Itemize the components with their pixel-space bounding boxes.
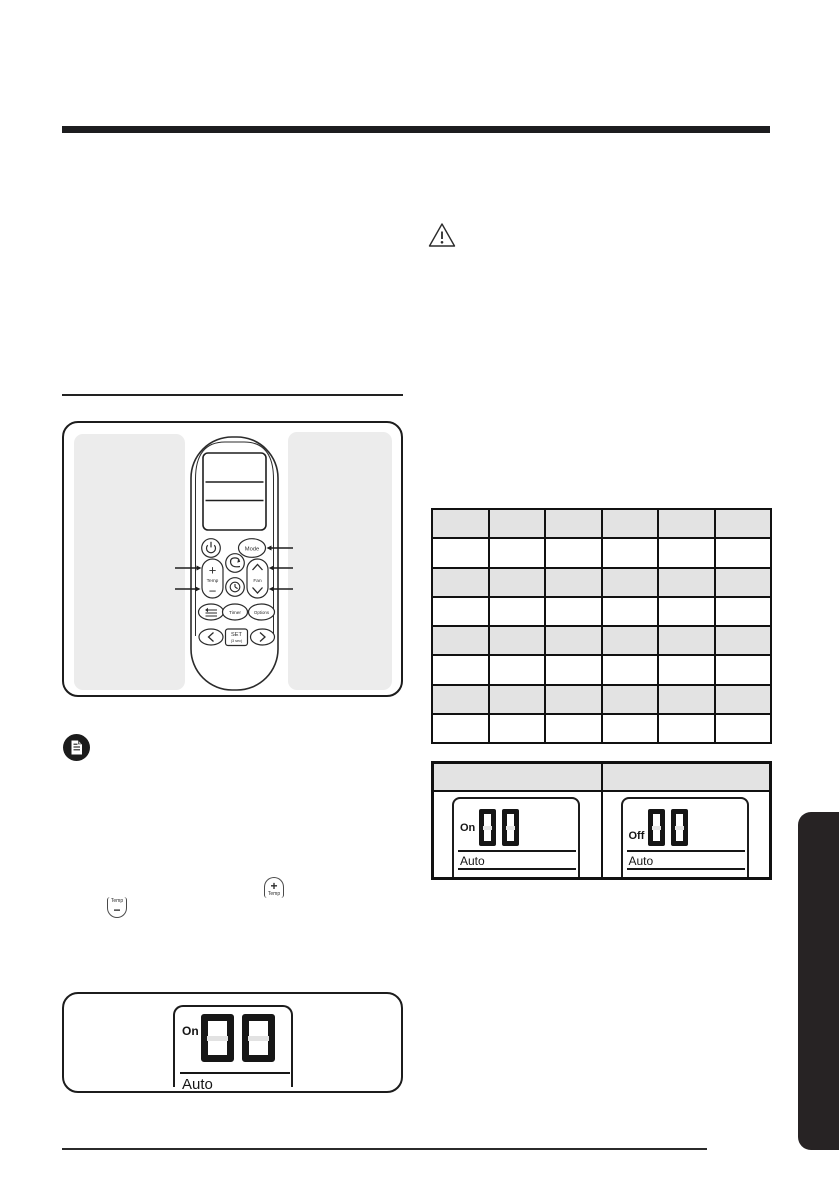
lcd-divider: [627, 868, 745, 870]
figure-heading-rule: [62, 394, 403, 396]
table-cell: [489, 714, 546, 743]
set-button-sublabel: (3 sec): [231, 639, 243, 643]
lcd-divider: [627, 850, 745, 852]
panel-right: [288, 432, 392, 690]
prev-button: [199, 629, 223, 645]
table-cell: [658, 655, 715, 684]
seven-segment-zero: [201, 1014, 234, 1062]
table-cell: [545, 655, 602, 684]
remote-control-drawing: Mode + Temp − Fan: [62, 421, 403, 697]
table-cell: [658, 597, 715, 626]
timer-table-header-on: [433, 763, 602, 791]
lcd-display-large: On 00 Auto: [173, 1005, 293, 1087]
table-cell: [545, 538, 602, 567]
table-cell: [602, 597, 659, 626]
table-cell: [432, 538, 489, 567]
table-cell: [545, 626, 602, 655]
timer-table: On 00 Auto Off 00 Auto: [431, 761, 772, 880]
lcd-mode: Auto: [182, 1076, 213, 1093]
table-row: [432, 568, 771, 597]
temp-up-button-icon: + Temp: [264, 877, 284, 898]
table-row: [432, 685, 771, 714]
lcd-status: On: [182, 1024, 199, 1038]
lcd-divider: [458, 850, 576, 852]
minus-sign: −: [113, 904, 120, 916]
table-cell: [602, 685, 659, 714]
chapter-tab: [798, 812, 839, 1150]
table-cell: [432, 597, 489, 626]
section-title-rule: [62, 126, 770, 133]
table-cell: [489, 626, 546, 655]
table-cell: [715, 714, 772, 743]
air-direction-button: [226, 554, 245, 573]
table-row: [432, 597, 771, 626]
table-cell: [545, 597, 602, 626]
plus-sign: +: [270, 880, 277, 892]
remote-display: [203, 453, 266, 530]
table-cell: [602, 538, 659, 567]
table-cell: [432, 685, 489, 714]
table-cell: [602, 568, 659, 597]
table-cell: [489, 509, 546, 538]
seven-segment-zero: [242, 1014, 275, 1062]
table-cell: [545, 509, 602, 538]
table-cell: [432, 655, 489, 684]
table-cell: [715, 655, 772, 684]
table-cell: [602, 626, 659, 655]
seven-segment-zero: [502, 809, 519, 846]
table-cell: [489, 655, 546, 684]
seven-segment-digits: [201, 1014, 275, 1062]
warning-triangle-icon: [427, 221, 457, 251]
table-cell: [715, 509, 772, 538]
table-cell: [715, 538, 772, 567]
mode-button-label: Mode: [245, 546, 260, 552]
timer-table-header-off: [602, 763, 771, 791]
seven-segment-zero: [648, 809, 665, 846]
timer-button-label: Timer: [229, 610, 241, 616]
temp-down-button-icon: Temp −: [107, 897, 127, 918]
fan-button-label: Fan: [253, 578, 262, 584]
table-cell: [432, 626, 489, 655]
table-row: [432, 714, 771, 743]
table-cell: [658, 714, 715, 743]
table-cell: [715, 597, 772, 626]
temp-label: Temp: [268, 892, 280, 897]
table-row: [432, 655, 771, 684]
lcd-value: 00: [623, 799, 624, 800]
on-timer-figure: On 00 Auto: [62, 992, 403, 1093]
manual-page: Mode + Temp − Fan: [0, 0, 839, 1191]
table-row: [432, 509, 771, 538]
panel-left: [74, 434, 185, 690]
table-cell: [432, 714, 489, 743]
lcd-status: On: [460, 822, 475, 834]
table-cell: [715, 685, 772, 714]
lcd-divider: [180, 1072, 290, 1074]
timer-table-cell-on: On 00 Auto: [433, 791, 602, 878]
table-cell: [545, 714, 602, 743]
table-cell: [545, 568, 602, 597]
power-button: [202, 539, 221, 558]
temp-minus-label: −: [209, 584, 217, 599]
temp-plus-label: +: [209, 563, 217, 578]
lcd-mode: Auto: [629, 854, 654, 868]
table-cell: [658, 626, 715, 655]
set-button-label: SET: [231, 632, 242, 638]
lcd-display-off-timer: Off 00 Auto: [621, 797, 749, 878]
table-row: [432, 626, 771, 655]
table-cell: [489, 568, 546, 597]
seven-segment-zero: [479, 809, 496, 846]
remote-control-figure: Mode + Temp − Fan: [62, 421, 403, 697]
table-cell: [489, 685, 546, 714]
seven-segment-zero: [671, 809, 688, 846]
lcd-status: Off: [629, 830, 645, 842]
table-cell: [602, 655, 659, 684]
table-cell: [489, 538, 546, 567]
table-cell: [432, 568, 489, 597]
next-button: [251, 629, 275, 645]
air-swing-button: [199, 604, 224, 620]
lcd-value: 00: [175, 1007, 176, 1008]
note-icon: [62, 733, 91, 762]
seven-segment-digits: [479, 809, 519, 846]
table-cell: [545, 685, 602, 714]
options-button-label: Options: [254, 610, 270, 615]
spec-table-body: [432, 509, 771, 743]
lcd-mode: Auto: [460, 854, 485, 868]
table-cell: [432, 509, 489, 538]
spec-table: [431, 508, 772, 744]
table-cell: [715, 568, 772, 597]
timer-table-cell-off: Off 00 Auto: [602, 791, 771, 878]
table-cell: [658, 685, 715, 714]
table-cell: [715, 626, 772, 655]
table-row: [432, 538, 771, 567]
table-cell: [602, 714, 659, 743]
table-cell: [658, 568, 715, 597]
table-cell: [489, 597, 546, 626]
seven-segment-digits: [648, 809, 688, 846]
lcd-value: 00: [454, 799, 455, 800]
footer-rule: [62, 1148, 707, 1150]
lcd-display-on-timer: On 00 Auto: [452, 797, 580, 878]
table-cell: [658, 509, 715, 538]
lcd-divider: [458, 868, 576, 870]
table-cell: [658, 538, 715, 567]
table-cell: [602, 509, 659, 538]
